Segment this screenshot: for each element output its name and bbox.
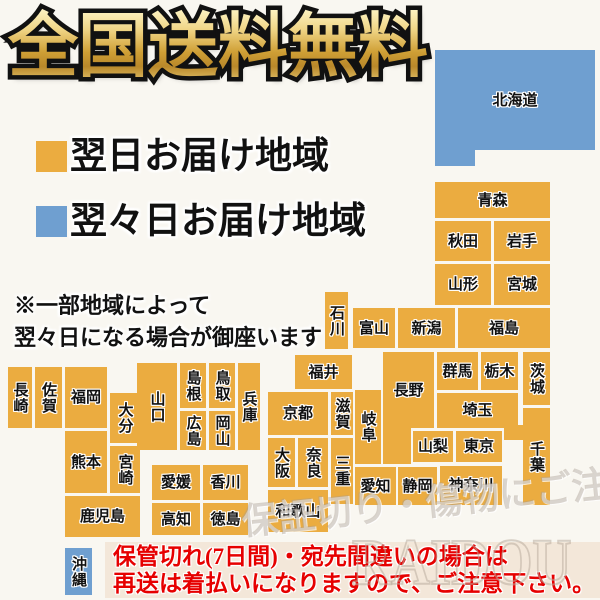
prefecture-tokushima: 徳島 xyxy=(203,503,248,535)
prefecture-tottori-label: 鳥取 xyxy=(215,370,230,402)
prefecture-kyoto-label: 京都 xyxy=(283,406,313,421)
prefecture-mie-label: 三重 xyxy=(335,455,350,487)
prefecture-iwate: 岩手 xyxy=(494,221,550,261)
prefecture-kanagawa-label: 神奈川 xyxy=(448,478,493,493)
prefecture-yamanashi-label: 山梨 xyxy=(418,439,448,454)
prefecture-ehime-label: 愛媛 xyxy=(161,475,191,490)
prefecture-nagano-ext xyxy=(383,428,411,464)
prefecture-nara: 奈良 xyxy=(298,438,328,487)
prefecture-miyagi: 宮城 xyxy=(494,264,550,305)
prefecture-aichi: 愛知 xyxy=(355,467,396,505)
prefecture-toyama-label: 富山 xyxy=(359,321,389,336)
prefecture-gunma: 群馬 xyxy=(437,352,478,390)
prefecture-kagoshima: 鹿児島 xyxy=(65,496,140,537)
prefecture-yamaguchi: 山口 xyxy=(137,363,177,450)
prefecture-aichi-label: 愛知 xyxy=(360,479,390,494)
prefecture-niigata-label: 新潟 xyxy=(411,321,441,336)
prefecture-saga-label: 佐賀 xyxy=(41,382,56,414)
prefecture-nagano-label: 長野 xyxy=(393,383,423,398)
prefecture-tottori: 鳥取 xyxy=(209,363,235,408)
warning-text: 保管切れ(7日間)・宛先間違いの場合は 再送は着払いになりますので、ご注意下さい… xyxy=(113,543,595,597)
prefecture-kanagawa: 神奈川 xyxy=(440,466,502,505)
prefecture-miyazaki: 宮崎 xyxy=(110,446,140,493)
prefecture-gifu-label: 岐阜 xyxy=(361,411,376,443)
prefecture-saitama-label: 埼玉 xyxy=(462,403,492,418)
prefecture-osaka: 大阪 xyxy=(268,438,295,487)
prefecture-oita-label: 大分 xyxy=(118,402,133,434)
prefecture-ibaraki-label: 茨城 xyxy=(529,363,544,395)
japan-map: 北海道青森秋田岩手山形宮城福島新潟富山石川福井長野群馬栃木茨城埼玉山梨東京千葉神… xyxy=(0,0,600,600)
prefecture-shimane: 島根 xyxy=(180,363,206,408)
prefecture-okinawa-label: 沖縄 xyxy=(71,556,86,588)
prefecture-shimane-label: 島根 xyxy=(186,370,201,402)
prefecture-okayama: 岡山 xyxy=(209,411,235,450)
prefecture-shiga-label: 滋賀 xyxy=(335,398,350,430)
prefecture-tochigi-label: 栃木 xyxy=(484,364,514,379)
prefecture-kyoto: 京都 xyxy=(268,392,328,435)
prefecture-kagoshima-label: 鹿児島 xyxy=(80,509,125,524)
prefecture-chiba-ext xyxy=(504,425,523,440)
prefecture-fukui-label: 福井 xyxy=(308,365,338,380)
prefecture-mie: 三重 xyxy=(331,438,353,504)
prefecture-fukuoka-label: 福岡 xyxy=(71,390,101,405)
prefecture-miyagi-label: 宮城 xyxy=(507,277,537,292)
prefecture-nara-label: 奈良 xyxy=(306,447,321,479)
prefecture-hokkaido: 北海道 xyxy=(435,50,595,150)
prefecture-tokyo-label: 東京 xyxy=(464,439,494,454)
prefecture-aomori-label: 青森 xyxy=(477,193,507,208)
prefecture-shiga: 滋賀 xyxy=(331,392,353,435)
prefecture-hiroshima: 広島 xyxy=(180,411,206,450)
prefecture-niigata: 新潟 xyxy=(398,308,455,348)
prefecture-shizuoka-label: 静岡 xyxy=(402,479,432,494)
prefecture-akita: 秋田 xyxy=(435,221,491,261)
prefecture-yamagata-label: 山形 xyxy=(448,277,478,292)
prefecture-wakayama-label: 和歌山 xyxy=(275,504,320,519)
prefecture-saitama: 埼玉 xyxy=(437,393,518,428)
prefecture-chiba: 千葉 xyxy=(523,408,550,505)
prefecture-okayama-label: 岡山 xyxy=(215,415,230,447)
prefecture-nagano: 長野 xyxy=(383,352,434,428)
prefecture-hokkaido-ext xyxy=(435,150,475,166)
prefecture-hiroshima-label: 広島 xyxy=(186,415,201,447)
prefecture-fukui: 福井 xyxy=(295,355,352,389)
prefecture-akita-label: 秋田 xyxy=(448,234,478,249)
prefecture-gifu: 岐阜 xyxy=(355,390,381,464)
prefecture-kagawa: 香川 xyxy=(203,465,248,500)
prefecture-chiba-label: 千葉 xyxy=(529,441,544,473)
prefecture-kagawa-label: 香川 xyxy=(210,475,240,490)
prefecture-kumamoto-label: 熊本 xyxy=(71,455,101,470)
prefecture-kumamoto: 熊本 xyxy=(65,431,107,493)
prefecture-ibaraki: 茨城 xyxy=(523,352,550,405)
prefecture-nagasaki: 長崎 xyxy=(8,367,32,428)
prefecture-tokushima-label: 徳島 xyxy=(210,512,240,527)
prefecture-yamaguchi-label: 山口 xyxy=(150,391,165,423)
shipping-banner: 全国送料無料 全国送料無料 翌日お届け地域 翌々日お届け地域 ※一部地域によって… xyxy=(0,0,600,600)
prefecture-shizuoka: 静岡 xyxy=(398,467,437,505)
prefecture-ishikawa-label: 石川 xyxy=(329,305,344,337)
prefecture-fukushima: 福島 xyxy=(458,308,550,348)
prefecture-nagasaki-label: 長崎 xyxy=(13,382,28,414)
prefecture-hyogo: 兵庫 xyxy=(238,363,260,450)
warning-line2: 再送は着払いになりますので、ご注意下さい。 xyxy=(113,570,595,597)
warning-line1: 保管切れ(7日間)・宛先間違いの場合は xyxy=(113,543,595,570)
prefecture-tochigi: 栃木 xyxy=(481,352,518,390)
prefecture-okinawa: 沖縄 xyxy=(65,548,92,595)
prefecture-iwate-label: 岩手 xyxy=(507,234,537,249)
prefecture-saga: 佐賀 xyxy=(35,367,62,428)
prefecture-kochi-label: 高知 xyxy=(161,512,191,527)
prefecture-oita: 大分 xyxy=(110,393,140,443)
prefecture-yamagata: 山形 xyxy=(435,264,491,305)
prefecture-miyazaki-label: 宮崎 xyxy=(118,454,133,486)
prefecture-fukuoka: 福岡 xyxy=(65,367,107,428)
prefecture-kochi: 高知 xyxy=(152,503,200,535)
prefecture-hyogo-label: 兵庫 xyxy=(242,391,257,423)
prefecture-tokyo: 東京 xyxy=(456,431,502,462)
prefecture-ishikawa: 石川 xyxy=(325,292,348,349)
prefecture-osaka-label: 大阪 xyxy=(274,447,289,479)
prefecture-fukushima-label: 福島 xyxy=(489,321,519,336)
prefecture-toyama: 富山 xyxy=(353,308,395,348)
prefecture-wakayama: 和歌山 xyxy=(268,490,328,532)
prefecture-aomori: 青森 xyxy=(435,182,550,218)
prefecture-gunma-label: 群馬 xyxy=(442,364,472,379)
prefecture-ehime: 愛媛 xyxy=(152,465,200,500)
prefecture-hokkaido-label: 北海道 xyxy=(492,93,537,108)
prefecture-yamanashi: 山梨 xyxy=(413,431,453,462)
